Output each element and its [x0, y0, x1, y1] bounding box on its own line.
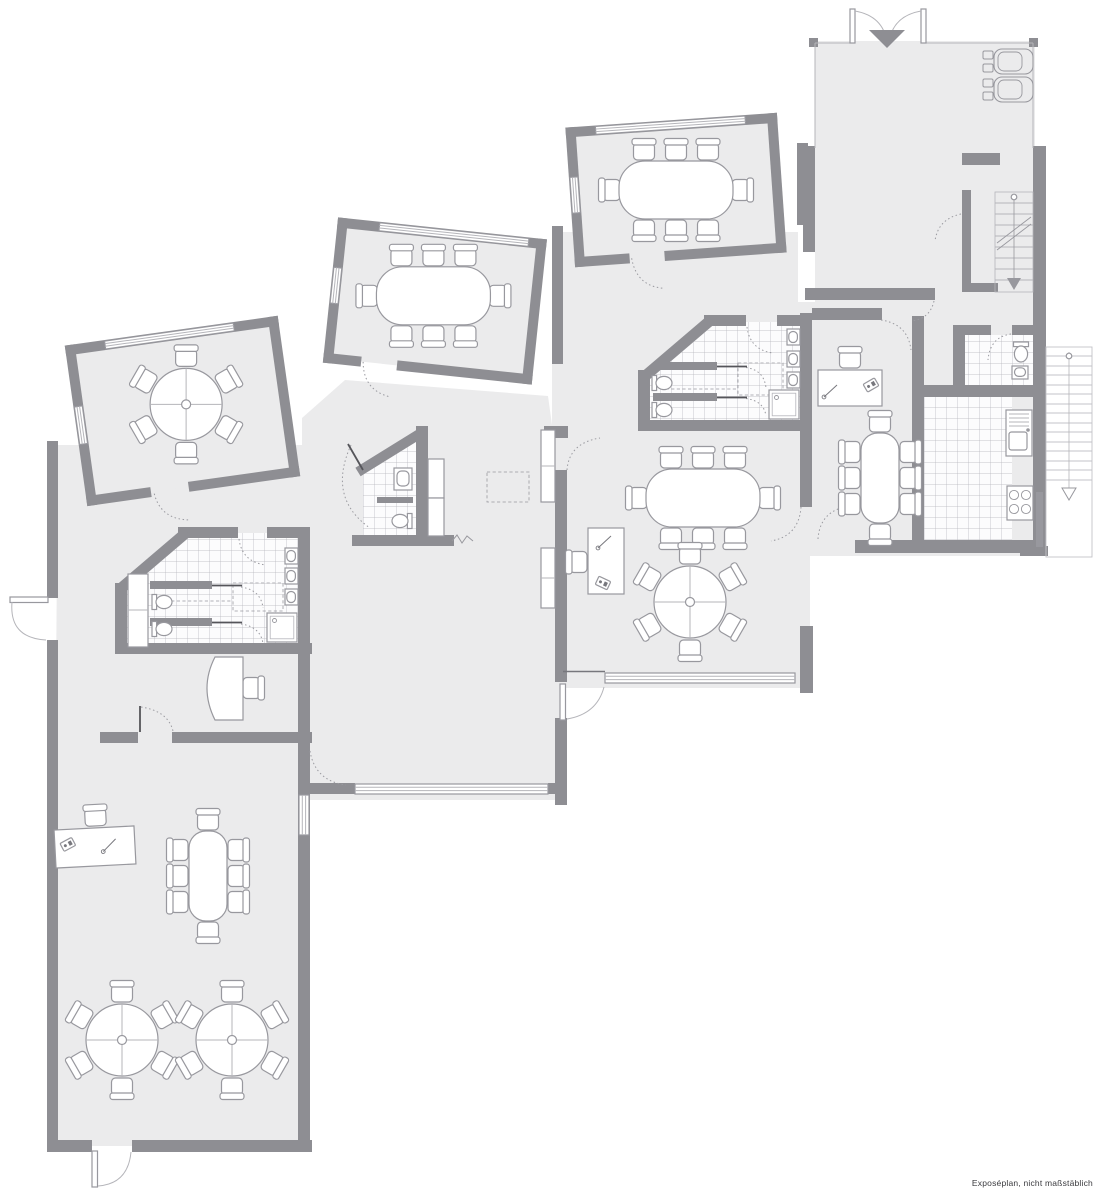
wc-icon [152, 595, 172, 610]
wc-icon [1014, 342, 1029, 362]
sink-icon [1012, 366, 1028, 379]
floor-plan-page: Exposéplan, nicht maßstäblich [0, 0, 1102, 1200]
wall-watermark [1036, 492, 1043, 547]
cabinet [428, 459, 444, 498]
exterior-stairs [1046, 347, 1092, 557]
sink-icon [787, 329, 800, 345]
exit-door-west [10, 597, 48, 640]
wc-icon [652, 403, 672, 418]
stair-direction-arrow-icon [1062, 488, 1076, 500]
wc-icon [652, 376, 672, 391]
shower-icon [769, 390, 799, 419]
sink-icon [285, 589, 298, 605]
sink-icon [787, 351, 800, 367]
kitchen-tiles [924, 397, 1012, 540]
wc-icon [152, 622, 172, 637]
curved-desk [207, 657, 243, 720]
kitchen-sink-unit [1006, 410, 1032, 456]
sink-icon [285, 568, 298, 584]
sink-icon [285, 548, 298, 564]
floor-plan-drawing [0, 0, 1102, 1200]
cabinet [428, 498, 444, 536]
window-main-room-south [605, 673, 795, 683]
window [570, 177, 580, 213]
window-corridor-south [355, 784, 548, 794]
shower-icon [267, 613, 297, 642]
window-hall-east [299, 795, 309, 835]
stove-icon [1007, 486, 1033, 520]
sink-icon [787, 372, 800, 388]
exit-door-south [92, 1151, 131, 1187]
plan-caption: Exposéplan, nicht maßstäblich [972, 1178, 1093, 1188]
wc-icon [392, 514, 412, 529]
